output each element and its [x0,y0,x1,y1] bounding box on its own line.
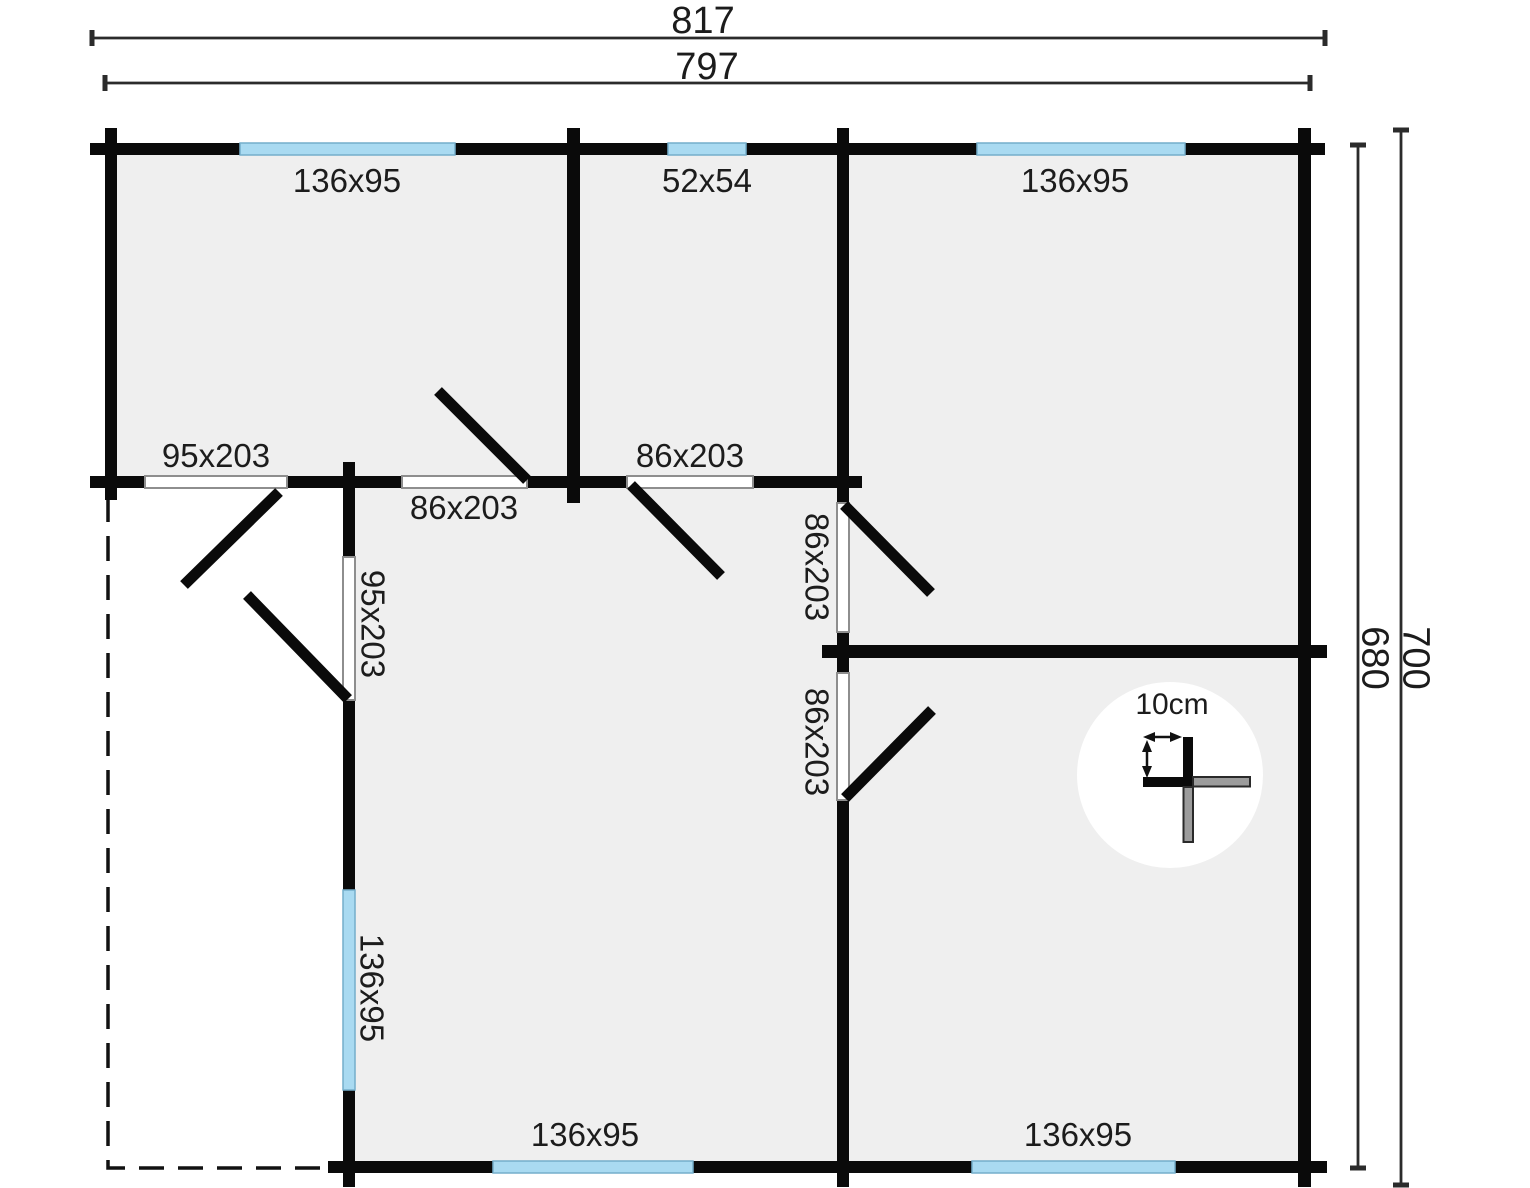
scale-wall-gray-right [1193,777,1250,787]
door-hall-left [402,476,527,488]
label-window-left-side: 136x95 [353,934,390,1042]
dim-label-680: 680 [1354,626,1396,689]
window-bottom-middle [493,1161,693,1173]
window-top-right [977,143,1185,155]
window-top-left [240,143,455,155]
window-top-middle [668,143,746,155]
label-window-top-left: 136x95 [293,162,401,199]
label-window-bottom-right: 136x95 [1024,1116,1132,1153]
scale-wall-gray-bottom [1184,787,1194,842]
door-hall-right [627,476,753,488]
label-door-side-terrace: 95x203 [354,570,391,678]
dim-label-817: 817 [671,0,734,42]
label-door-hall-left: 86x203 [410,489,518,526]
wall-left-exterior [105,128,117,500]
label-door-front-terrace: 95x203 [162,437,270,474]
wall-bottom-exterior [328,1161,1327,1173]
wall-interior-vertical-middle [837,128,849,1187]
dim-label-700: 700 [1395,626,1437,689]
label-door-right-room-upper: 86x203 [798,513,835,621]
label-window-top-middle: 52x54 [662,162,752,199]
door-front-terrace [145,476,287,488]
terrace-area-fill [105,488,343,1188]
scale-label: 10cm [1135,688,1208,721]
label-door-hall-right: 86x203 [636,437,744,474]
scale-wall-black-horizontal [1143,777,1193,787]
floor-plan-drawing: 817 797 680 700 136x95 52x54 136x95 95x2… [0,0,1530,1188]
label-door-right-room-lower: 86x203 [798,688,835,796]
scale-indicator: 10cm [1077,682,1263,868]
door-right-room-upper [837,503,849,632]
room-fills [105,143,1311,1188]
wall-interior-horizontal-right [822,645,1327,658]
door-right-room-lower [837,673,849,800]
dim-label-797: 797 [675,46,738,88]
floor-plan-page: 817 797 680 700 136x95 52x54 136x95 95x2… [0,0,1530,1188]
scale-wall-black-vertical [1183,737,1193,778]
label-window-top-right: 136x95 [1021,162,1129,199]
label-window-bottom-middle: 136x95 [531,1116,639,1153]
window-left-side [343,890,355,1090]
door-side-terrace [343,557,355,700]
window-bottom-right [972,1161,1175,1173]
wall-interior-vertical-top [567,128,580,503]
